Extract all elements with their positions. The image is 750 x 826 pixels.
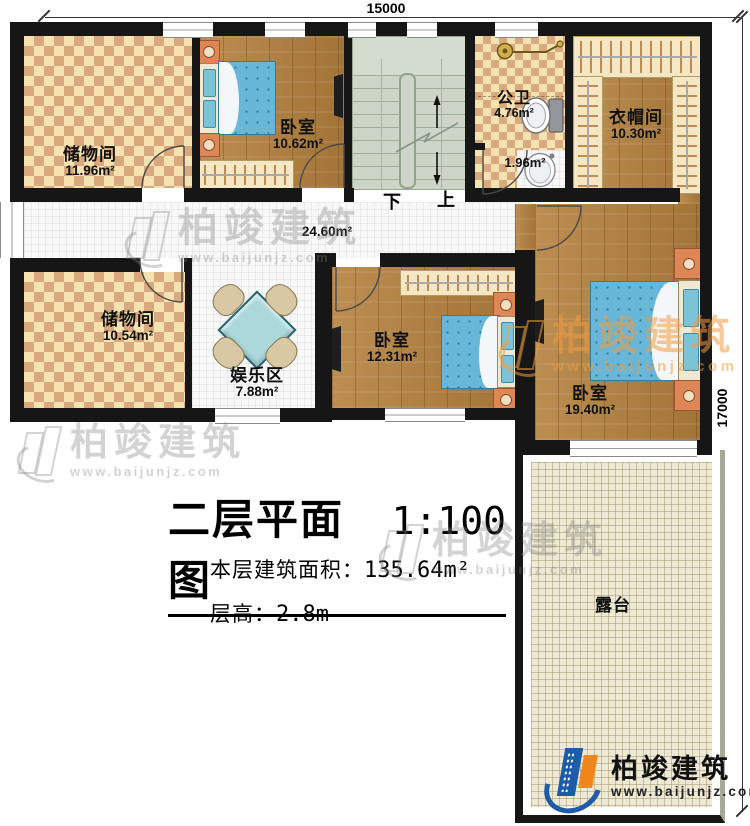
floor-height-line: 层高：2.8m: [210, 598, 329, 628]
company-logo: 柏竣建筑 www.baijunjz.com: [545, 746, 750, 808]
stair-break-line: [396, 95, 458, 185]
room-label-cloakroom: 衣帽间 10.30m²: [600, 109, 672, 142]
room-label-corridor: 24.60m²: [296, 225, 358, 240]
room-label-storage-2: 储物间 10.54m²: [80, 311, 176, 344]
stairs-up-label: 上: [437, 186, 455, 212]
floor-area-line: 本层建筑面积：135.64m²: [210, 554, 470, 584]
room-label-storage-1: 储物间 11.96m²: [40, 146, 140, 179]
room-label-bedroom-2: 卧室 12.31m²: [354, 332, 430, 365]
room-label-washbasin: 1.96m²: [496, 156, 554, 170]
company-website: www.baijunjz.com: [611, 784, 750, 799]
plan-title-text: 二层平面图: [168, 486, 372, 608]
company-name: 柏竣建筑: [611, 755, 750, 785]
shower-head-icon: [498, 41, 564, 59]
plan-scale: 1:100: [392, 499, 506, 543]
room-label-terrace: 露台: [582, 597, 644, 615]
room-label-bathroom: 公卫 4.76m²: [488, 90, 540, 121]
room-label-entertainment: 娱乐区 7.88m²: [219, 367, 295, 400]
company-logo-icon: [545, 746, 605, 808]
room-label-bedroom-3: 卧室 19.40m²: [552, 385, 628, 418]
stairs-down-label: 下: [383, 188, 401, 214]
room-label-bedroom-1: 卧室 10.62m²: [260, 119, 336, 152]
floor-plan-canvas: 15000 17000: [0, 0, 750, 826]
